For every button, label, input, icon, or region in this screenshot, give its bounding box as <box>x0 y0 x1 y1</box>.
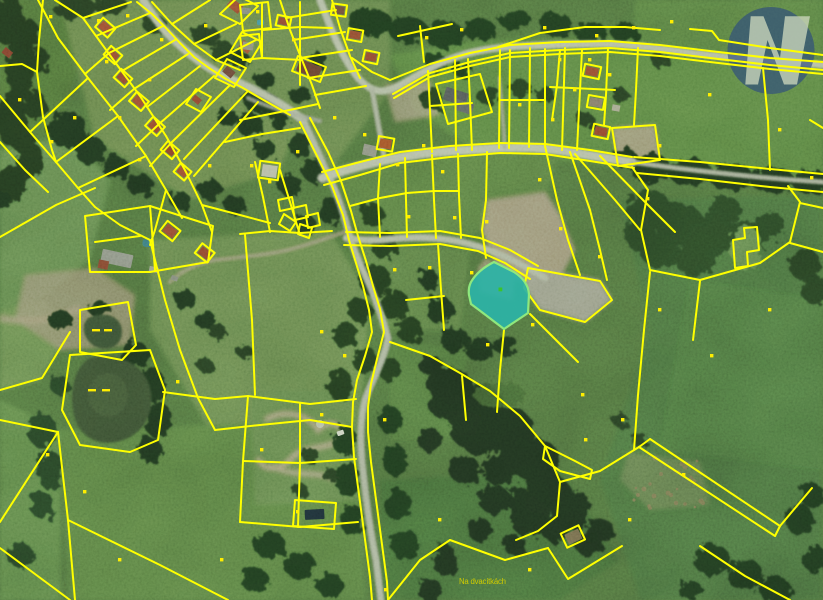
svg-text:Na dvacítkách: Na dvacítkách <box>459 577 506 586</box>
